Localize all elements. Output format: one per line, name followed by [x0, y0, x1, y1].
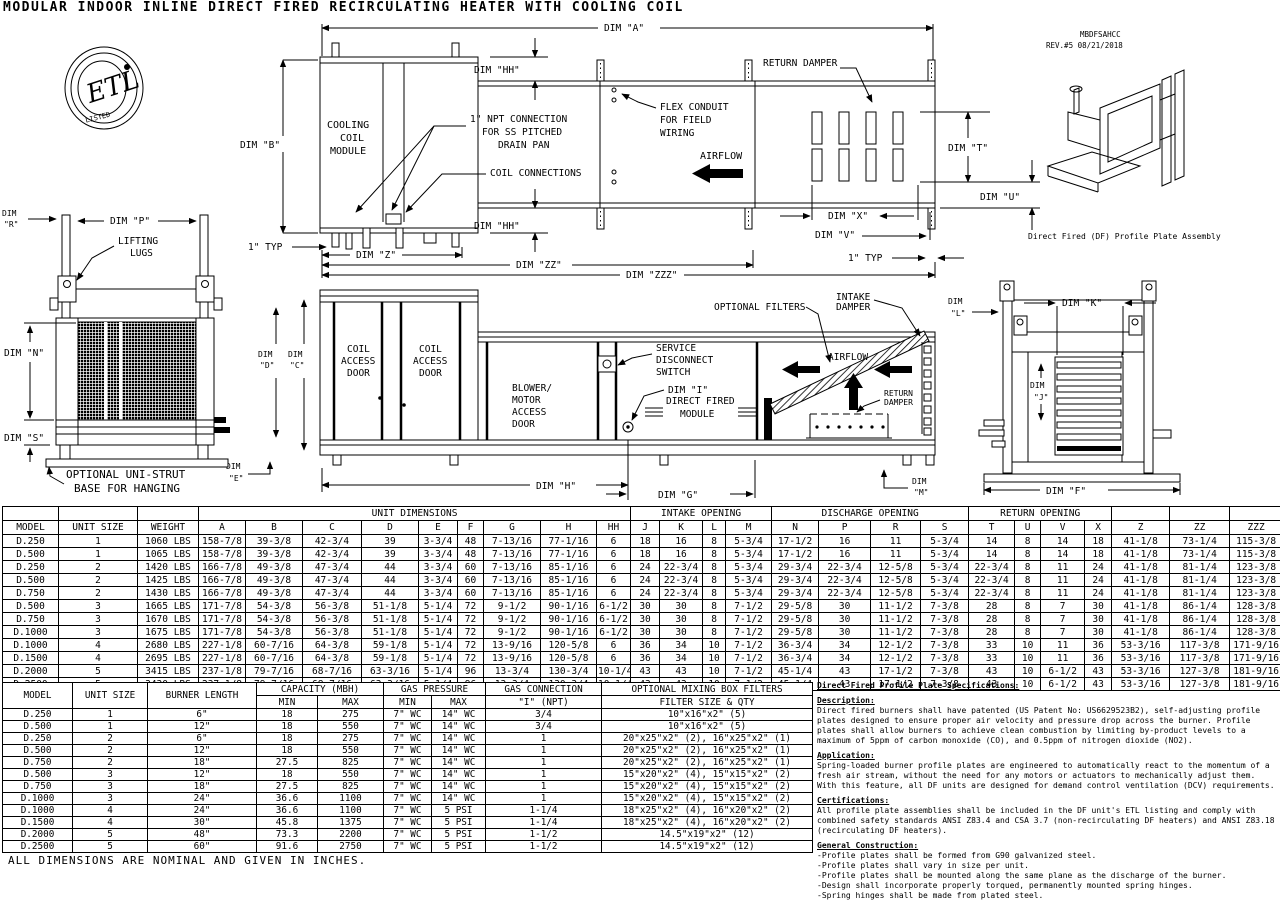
- dim-table-cell: 51-1/8: [362, 600, 419, 613]
- cap-table-cell: 6": [148, 733, 257, 745]
- cap-table-cell: 15"x20"x2" (4), 15"x15"x2" (2): [602, 781, 813, 793]
- dim-table-cell: 60-7/16: [246, 652, 303, 665]
- dim-table-cell: 13-3/4: [484, 665, 541, 678]
- side-view: COIL ACCESS DOOR COIL ACCESS DOOR BLOWER…: [226, 290, 998, 501]
- dim-table-cell: 96: [458, 665, 484, 678]
- cap-table-row: D.500112"185507" WC14" WC3/410"x16"x2" (…: [3, 721, 813, 733]
- dim-a-label: DIM "A": [604, 23, 644, 34]
- cap-table-cell: 1375: [318, 817, 384, 829]
- dim-table-cell: 6: [597, 561, 631, 574]
- dim-table-cell: 11: [1041, 561, 1085, 574]
- cap-table-cell: 14" WC: [432, 781, 486, 793]
- cap-table-row: D.750318"27.58257" WC14" WC115"x20"x2" (…: [3, 781, 813, 793]
- cap-table-cell: 91.6: [257, 841, 318, 853]
- one-typ-right-label: 1" TYP: [848, 253, 883, 264]
- mid-return-damper-label-2: DAMPER: [884, 398, 913, 407]
- iso-caption: Direct Fired (DF) Profile Plate Assembly: [1028, 232, 1221, 241]
- dim-table-cell: 22-3/4: [969, 587, 1015, 600]
- dim-table-cell: 6-1/2: [597, 600, 631, 613]
- dim-zzz-label: DIM "ZZZ": [626, 270, 677, 281]
- dim-table-cell: 158-7/8: [199, 535, 246, 548]
- cooling-coil-label-1: COOLING: [327, 120, 369, 131]
- dim-table-cell: 117-3/8: [1170, 652, 1230, 665]
- dim-f-label: DIM "F": [1046, 486, 1086, 497]
- dim-table-cell: 8: [1015, 561, 1041, 574]
- cap-table-row: D.1000324"36.611007" WC14" WC115"x20"x2"…: [3, 793, 813, 805]
- cap-table-cell: 6": [148, 709, 257, 721]
- cap-table-cell: 7" WC: [384, 793, 432, 805]
- cap-table-row: D.1000424"36.611007" WC5 PSI1-1/418"x25"…: [3, 805, 813, 817]
- cap-table-cell: 7" WC: [384, 733, 432, 745]
- dim-table-cell: 54-3/8: [246, 626, 303, 639]
- dim-table-cell: 5-1/4: [419, 652, 458, 665]
- dim-e-label-2: "E": [229, 474, 243, 483]
- cap-table-row: D.500312"185507" WC14" WC115"x20"x2" (4)…: [3, 769, 813, 781]
- iso-view: Direct Fired (DF) Profile Plate Assembly: [1028, 70, 1221, 241]
- dim-table-cell: 5: [59, 665, 138, 678]
- dim-table-cell: 43: [969, 665, 1015, 678]
- dim-table-cell: 18: [1085, 535, 1112, 548]
- dim-table-cell: 5-3/4: [726, 561, 772, 574]
- dim-table-cell: 13-9/16: [484, 652, 541, 665]
- dim-table-cell: 22-3/4: [819, 587, 871, 600]
- cap-table-cell: 14" WC: [432, 721, 486, 733]
- dim-table-cell: 24: [1085, 587, 1112, 600]
- direct-fired-label-2: MODULE: [680, 409, 715, 420]
- coil-connections-label: COIL CONNECTIONS: [490, 168, 582, 179]
- dim-table-cell: 123-3/8: [1230, 561, 1280, 574]
- cap-table-cell: 36.6: [257, 805, 318, 817]
- cap-table-cell: 48": [148, 829, 257, 841]
- dim-table-cell: 11: [1041, 574, 1085, 587]
- dim-table-cell: 9-1/2: [484, 600, 541, 613]
- dim-table-cell: 72: [458, 626, 484, 639]
- cap-table-cell: D.1000: [3, 805, 73, 817]
- dim-table-row: D.75021430 LBS166-7/849-3/847-3/4443-3/4…: [3, 587, 1280, 600]
- dim-table-cell: 120-5/8: [541, 652, 597, 665]
- dim-table-cell: 166-7/8: [199, 587, 246, 600]
- direct-fired-label-1: DIRECT FIRED: [666, 396, 735, 407]
- dim-table-cell: 8: [703, 626, 726, 639]
- dim-table-cell: 22-3/4: [819, 561, 871, 574]
- dim-table-row: D.100042680 LBS227-1/860-7/1664-3/859-1/…: [3, 639, 1280, 652]
- dim-table-cell: 7-3/8: [921, 600, 969, 613]
- specs-bullet: -Design shall incorporate properly torqu…: [817, 881, 1279, 891]
- dim-table-cell: 3: [59, 613, 138, 626]
- dim-table-cell: 30: [631, 613, 660, 626]
- dim-table-col-header: K: [660, 521, 703, 535]
- dim-table-cell: D.250: [3, 535, 59, 548]
- dim-table-cell: 1665 LBS: [138, 600, 199, 613]
- cap-table-header: GAS PRESSURE: [384, 683, 486, 696]
- dim-table-cell: 7-13/16: [484, 574, 541, 587]
- cap-table-cell: 18"x25"x2" (4), 16"x20"x2" (2): [602, 805, 813, 817]
- cap-table-header: BURNER LENGTH: [148, 683, 257, 709]
- dim-table-cell: D.1500: [3, 652, 59, 665]
- dim-table-cell: 7-3/8: [921, 639, 969, 652]
- npt-label-1: 1" NPT CONNECTION: [470, 114, 568, 125]
- dim-table-cell: 6: [597, 652, 631, 665]
- dim-table-cell: 8: [1015, 535, 1041, 548]
- specs-bullet: -Profile plates shall be mounted along t…: [817, 871, 1279, 881]
- coil-access-door2-3: DOOR: [419, 368, 442, 379]
- revision: REV.#5 08/21/2018: [1046, 41, 1123, 50]
- dim-u-label: DIM "U": [980, 192, 1020, 203]
- dim-table-group-header: UNIT DIMENSIONS: [199, 507, 631, 521]
- optional-filters-label: OPTIONAL FILTERS: [714, 302, 806, 313]
- dim-table-cell: 24: [1085, 561, 1112, 574]
- dim-table-cell: 39: [362, 548, 419, 561]
- dim-table-cell: 43: [660, 665, 703, 678]
- dim-table-cell: 85-1/16: [541, 587, 597, 600]
- dim-table-cell: 22-3/4: [660, 587, 703, 600]
- dim-table-group-header: [138, 507, 199, 521]
- dim-table-cell: 41-1/8: [1112, 574, 1170, 587]
- dim-table-cell: 2695 LBS: [138, 652, 199, 665]
- dim-table-group-header: [59, 507, 138, 521]
- dim-table-cell: 17-1/2: [871, 665, 921, 678]
- cap-table-cell: 7" WC: [384, 721, 432, 733]
- dim-table-cell: 7: [1041, 626, 1085, 639]
- dim-table-cell: 73-1/4: [1170, 548, 1230, 561]
- dim-x-label: DIM "X": [828, 211, 868, 222]
- dim-table-cell: 11-1/2: [871, 626, 921, 639]
- dim-table-cell: 5-1/4: [419, 613, 458, 626]
- intake-damper-label-2: DAMPER: [836, 302, 871, 313]
- dim-s-label: DIM "S": [4, 433, 44, 444]
- dim-table-cell: 18: [631, 548, 660, 561]
- dim-table-cell: 90-1/16: [541, 600, 597, 613]
- dim-table-cell: 8: [703, 613, 726, 626]
- npt-label-2: FOR SS PITCHED: [482, 127, 562, 138]
- dim-table-row: D.150042695 LBS227-1/860-7/1664-3/859-1/…: [3, 652, 1280, 665]
- specs-bullet: -Spring hinges shall be made from plated…: [817, 891, 1279, 901]
- dim-table-cell: 7-13/16: [484, 535, 541, 548]
- dim-table-cell: 56-3/8: [303, 626, 362, 639]
- dim-table-cell: 3: [59, 626, 138, 639]
- model-code: MBDFSAHCC: [1080, 30, 1121, 39]
- dim-table-cell: 10: [1015, 639, 1041, 652]
- specs-section-heading: Certifications:: [817, 796, 1279, 806]
- specs-bullet: -Profile plates shall vary in size per u…: [817, 861, 1279, 871]
- dim-table-cell: 43: [631, 665, 660, 678]
- dim-table-cell: 6: [597, 587, 631, 600]
- dim-table-cell: D.2000: [3, 665, 59, 678]
- dim-table-cell: 8: [1015, 574, 1041, 587]
- dim-table-cell: 5-3/4: [726, 587, 772, 600]
- dim-table-cell: 24: [631, 561, 660, 574]
- dim-table-cell: 13-9/16: [484, 639, 541, 652]
- return-damper-label: RETURN DAMPER: [763, 58, 838, 69]
- dim-table-cell: 22-3/4: [969, 561, 1015, 574]
- cooling-coil-label-3: MODULE: [330, 146, 366, 157]
- cap-table-cell: D.500: [3, 769, 73, 781]
- cap-table-cell: 4: [73, 805, 148, 817]
- dim-table-cell: 171-9/16: [1230, 652, 1280, 665]
- npt-label-3: DRAIN PAN: [498, 140, 550, 151]
- cap-table-cell: 14" WC: [432, 757, 486, 769]
- dim-table-cell: 47-3/4: [303, 574, 362, 587]
- dim-table-cell: 8: [703, 561, 726, 574]
- cap-table-cell: 15"x20"x2" (4), 15"x15"x2" (2): [602, 769, 813, 781]
- cap-table-cell: 825: [318, 781, 384, 793]
- cap-table-cell: 2750: [318, 841, 384, 853]
- unistrut-label-1: OPTIONAL UNI-STRUT: [66, 468, 186, 481]
- dim-table-cell: D.500: [3, 600, 59, 613]
- cap-table-cell: D.250: [3, 733, 73, 745]
- dim-table-cell: 5-3/4: [726, 535, 772, 548]
- blower-door-label-3: ACCESS: [512, 407, 547, 418]
- cap-table-cell: D.1000: [3, 793, 73, 805]
- dim-table-cell: 12-1/2: [871, 639, 921, 652]
- dim-table-cell: 22-3/4: [660, 574, 703, 587]
- cap-table-cell: D.750: [3, 781, 73, 793]
- dim-table-cell: 237-1/8: [199, 665, 246, 678]
- dim-table-cell: D.1000: [3, 639, 59, 652]
- cap-table-cell: 7" WC: [384, 769, 432, 781]
- dim-hh-top-label: DIM "HH": [474, 65, 520, 76]
- dim-table-cell: 1: [59, 548, 138, 561]
- cap-table-cell: 1-1/2: [486, 829, 602, 841]
- dim-table-col-header: Z: [1112, 521, 1170, 535]
- cap-table-cell: 275: [318, 733, 384, 745]
- dim-table-col-header: F: [458, 521, 484, 535]
- cap-table-header: MODEL: [3, 683, 73, 709]
- cap-table-subheader: MIN: [257, 696, 318, 709]
- dim-table-cell: 7-1/2: [726, 652, 772, 665]
- dim-table-cell: 34: [819, 639, 871, 652]
- cap-table-cell: 14" WC: [432, 709, 486, 721]
- dim-table-cell: 171-7/8: [199, 626, 246, 639]
- blower-door-label-4: DOOR: [512, 419, 535, 430]
- dim-table-cell: 63-3/16: [362, 665, 419, 678]
- cap-table-cell: 14.5"x19"x2" (12): [602, 829, 813, 841]
- dim-table-cell: 60: [458, 574, 484, 587]
- cap-table-cell: 18": [148, 781, 257, 793]
- dim-table-cell: 30: [819, 600, 871, 613]
- specs-title: Direct Fired Profile Plate Specification…: [817, 681, 1279, 691]
- dim-table-cell: 77-1/16: [541, 535, 597, 548]
- dim-table-col-header: D: [362, 521, 419, 535]
- dim-table-cell: 227-1/8: [199, 639, 246, 652]
- dim-table-cell: 54-3/8: [246, 600, 303, 613]
- dim-table-cell: 17-1/2: [772, 548, 819, 561]
- dim-table-cell: 36: [631, 639, 660, 652]
- dim-table-cell: 60: [458, 587, 484, 600]
- service-disconnect-label-2: DISCONNECT: [656, 355, 713, 366]
- dim-table-col-header: HH: [597, 521, 631, 535]
- cap-table-subheader: FILTER SIZE & QTY: [602, 696, 813, 709]
- dim-table-cell: 130-3/4: [541, 665, 597, 678]
- cap-table-cell: 30": [148, 817, 257, 829]
- dim-table-cell: 56-3/8: [303, 600, 362, 613]
- dim-table-cell: 81-1/4: [1170, 587, 1230, 600]
- specs-section-heading: General Construction:: [817, 841, 1279, 851]
- coil-access-door1-3: DOOR: [347, 368, 370, 379]
- dim-table-col-header: X: [1085, 521, 1112, 535]
- dim-table-cell: 24: [1085, 574, 1112, 587]
- dim-table-cell: 16: [660, 548, 703, 561]
- dim-table-col-header: ZZ: [1170, 521, 1230, 535]
- mid-airflow-label: AIRFLOW: [828, 352, 868, 363]
- dim-table-cell: 6-1/2: [1041, 665, 1085, 678]
- dim-m-label-2: "M": [914, 488, 928, 497]
- dim-table-cell: 24: [631, 587, 660, 600]
- dim-j-label-2: "J": [1034, 393, 1048, 402]
- dim-l-label-1: DIM: [948, 297, 963, 306]
- dim-table-cell: 7: [1041, 600, 1085, 613]
- dim-d-label-2: "D": [260, 361, 274, 370]
- dim-table-cell: 128-3/8: [1230, 600, 1280, 613]
- cap-table-cell: 20"x25"x2" (2), 16"x25"x2" (1): [602, 757, 813, 769]
- dim-table-cell: 3-3/4: [419, 574, 458, 587]
- cap-table-cell: 1: [486, 793, 602, 805]
- etl-logo: ETL LISTED: [65, 47, 143, 129]
- cap-table-cell: 18: [257, 733, 318, 745]
- dim-table-col-header: P: [819, 521, 871, 535]
- dim-i-label: DIM "I": [668, 385, 708, 396]
- dim-table-col-header: B: [246, 521, 303, 535]
- cap-table-cell: D.1500: [3, 817, 73, 829]
- unistrut-label-2: BASE FOR HANGING: [74, 482, 180, 495]
- dim-table-cell: 12-5/8: [871, 574, 921, 587]
- profile-plate-specs: Direct Fired Profile Plate Specification…: [817, 681, 1279, 901]
- dim-d-label-1: DIM: [258, 350, 273, 359]
- dim-table-cell: 123-3/8: [1230, 574, 1280, 587]
- dim-table-cell: 79-7/16: [246, 665, 303, 678]
- flex-conduit-label-2: FOR FIELD: [660, 115, 712, 126]
- dim-table-cell: 28: [969, 600, 1015, 613]
- dim-table-cell: 39: [362, 535, 419, 548]
- dim-table-cell: 12-1/2: [871, 652, 921, 665]
- cap-table-header: OPTIONAL MIXING BOX FILTERS: [602, 683, 813, 696]
- dim-table-cell: D.250: [3, 561, 59, 574]
- cap-table-cell: 73.3: [257, 829, 318, 841]
- dim-table-cell: 1: [59, 535, 138, 548]
- dim-table-cell: 10: [1015, 652, 1041, 665]
- dim-table-cell: 10: [1015, 665, 1041, 678]
- cap-table-cell: 14" WC: [432, 733, 486, 745]
- dim-table-cell: 7-3/8: [921, 626, 969, 639]
- dim-table-cell: D.500: [3, 574, 59, 587]
- dim-table-cell: 16: [660, 535, 703, 548]
- dim-table-row: D.200053415 LBS237-1/879-7/1668-7/1663-3…: [3, 665, 1280, 678]
- cap-table-cell: 1: [486, 757, 602, 769]
- dim-table-cell: 3-3/4: [419, 561, 458, 574]
- dim-table-cell: 36: [631, 652, 660, 665]
- dim-table-cell: 90-1/16: [541, 613, 597, 626]
- dim-r-label-1: DIM: [2, 209, 17, 218]
- cap-table-subheader: MAX: [432, 696, 486, 709]
- cap-table-cell: 18: [257, 745, 318, 757]
- dim-table-cell: 8: [1015, 626, 1041, 639]
- dim-table-cell: 8: [703, 574, 726, 587]
- dim-table-cell: 5-1/4: [419, 626, 458, 639]
- dim-table-cell: 5-3/4: [921, 587, 969, 600]
- plan-view: DIM "A" COOLING COIL MODULE: [240, 23, 1040, 281]
- dim-table-group-header: [1230, 507, 1280, 521]
- dim-table-col-header: MODEL: [3, 521, 59, 535]
- dim-table-col-header: T: [969, 521, 1015, 535]
- dim-table-cell: D.750: [3, 613, 59, 626]
- cap-table-cell: 14" WC: [432, 793, 486, 805]
- cap-table-cell: 1: [486, 733, 602, 745]
- dim-table-cell: 127-3/8: [1170, 665, 1230, 678]
- dim-table-cell: 11: [871, 548, 921, 561]
- specs-section-heading: Description:: [817, 696, 1279, 706]
- dim-table-cell: 85-1/16: [541, 574, 597, 587]
- dim-table-cell: 41-1/8: [1112, 587, 1170, 600]
- dim-table-cell: 14: [969, 535, 1015, 548]
- dim-table-cell: 166-7/8: [199, 574, 246, 587]
- dim-table-cell: 47-3/4: [303, 587, 362, 600]
- dim-table-cell: 6: [597, 574, 631, 587]
- cap-table-cell: 2: [73, 733, 148, 745]
- dim-table-col-header: C: [303, 521, 362, 535]
- dim-table-cell: 36: [1085, 652, 1112, 665]
- dim-table-cell: 48: [458, 548, 484, 561]
- cap-table-cell: 60": [148, 841, 257, 853]
- dim-table-cell: 85-1/16: [541, 561, 597, 574]
- dim-table-col-header: N: [772, 521, 819, 535]
- dim-table-cell: 3-3/4: [419, 587, 458, 600]
- cap-table-cell: 825: [318, 757, 384, 769]
- dim-table-cell: 30: [631, 626, 660, 639]
- dim-table-cell: 30: [660, 613, 703, 626]
- dim-table-cell: 56-3/8: [303, 613, 362, 626]
- dim-table-cell: 33: [969, 639, 1015, 652]
- cap-table-cell: 45.8: [257, 817, 318, 829]
- cap-table-cell: 1-1/4: [486, 817, 602, 829]
- dim-table-row: D.100031675 LBS171-7/854-3/856-3/851-1/8…: [3, 626, 1280, 639]
- dim-table-cell: 18: [1085, 548, 1112, 561]
- dim-table-cell: 4: [59, 652, 138, 665]
- cap-table-row: D.750218"27.58257" WC14" WC120"x25"x2" (…: [3, 757, 813, 769]
- dim-table-group-header: [3, 507, 59, 521]
- dim-table-cell: 5-1/4: [419, 639, 458, 652]
- dim-table-row: D.25011060 LBS158-7/839-3/842-3/4393-3/4…: [3, 535, 1280, 548]
- dim-table-cell: 2: [59, 561, 138, 574]
- cap-table-cell: 7" WC: [384, 757, 432, 769]
- dim-table-row: D.50031665 LBS171-7/854-3/856-3/851-1/85…: [3, 600, 1280, 613]
- dim-table-cell: 22-3/4: [660, 561, 703, 574]
- dim-table-cell: 158-7/8: [199, 548, 246, 561]
- cap-table-cell: 10"x16"x2" (5): [602, 721, 813, 733]
- cap-table-cell: 275: [318, 709, 384, 721]
- dim-table-cell: 42-3/4: [303, 535, 362, 548]
- dim-table-cell: 59-1/8: [362, 652, 419, 665]
- dim-r-label-2: "R": [4, 220, 18, 229]
- dim-table-cell: 10-1/4: [597, 665, 631, 678]
- dim-table-col-header: A: [199, 521, 246, 535]
- dim-table-cell: 11-1/2: [871, 613, 921, 626]
- dim-table-cell: 44: [362, 587, 419, 600]
- dim-table-cell: 29-5/8: [772, 613, 819, 626]
- dim-table-cell: 9-1/2: [484, 626, 541, 639]
- cap-table-cell: 5 PSI: [432, 829, 486, 841]
- dim-table-cell: 9-1/2: [484, 613, 541, 626]
- dim-table-cell: 47-3/4: [303, 561, 362, 574]
- dim-table-cell: 7-1/2: [726, 665, 772, 678]
- dim-table-cell: 60-7/16: [246, 639, 303, 652]
- dim-table-group-header: [1170, 507, 1230, 521]
- cap-table-cell: 4: [73, 817, 148, 829]
- dim-table-cell: 34: [819, 652, 871, 665]
- dim-table-cell: 18: [631, 535, 660, 548]
- dimensions-footnote: ALL DIMENSIONS ARE NOMINAL AND GIVEN IN …: [8, 854, 366, 867]
- dim-table-cell: 29-5/8: [772, 626, 819, 639]
- cap-table-cell: 1100: [318, 793, 384, 805]
